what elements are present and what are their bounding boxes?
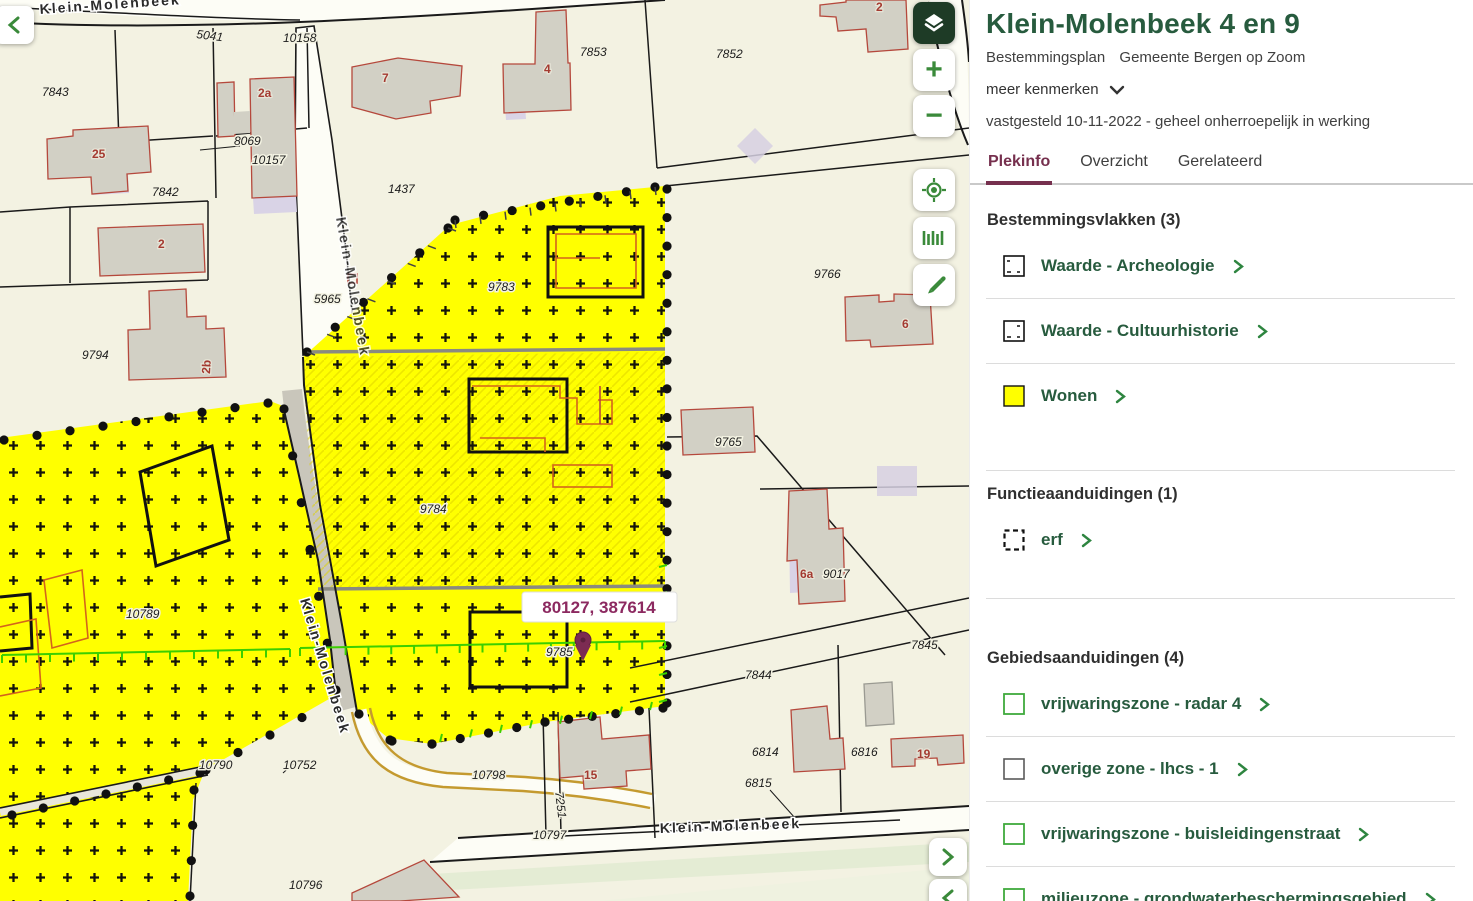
svg-text:7843: 7843 — [42, 85, 69, 99]
more-attributes-toggle[interactable]: meer kenmerken — [986, 81, 1125, 98]
chevron-right-icon — [1425, 892, 1436, 901]
milieuzone-legend-icon — [1003, 888, 1025, 901]
locate-button[interactable] — [913, 169, 955, 211]
svg-text:10789: 10789 — [126, 607, 160, 621]
ruler-icon — [921, 227, 947, 249]
list-item-milieuzone-grondwater[interactable]: milieuzone - grondwaterbeschermingsgebie… — [986, 866, 1455, 901]
section-heading-bestemmingsvlakken: Bestemmingsvlakken (3) — [987, 211, 1455, 230]
tab-plekinfo[interactable]: Plekinfo — [986, 145, 1052, 185]
svg-text:6815: 6815 — [745, 776, 772, 790]
svg-text:6814: 6814 — [752, 745, 779, 759]
svg-text:9766: 9766 — [814, 267, 841, 281]
draw-button[interactable] — [913, 264, 955, 306]
svg-text:10157: 10157 — [252, 153, 287, 167]
svg-text:2b: 2b — [199, 359, 214, 374]
section-heading-functieaanduidingen: Functieaanduidingen (1) — [987, 485, 1455, 504]
svg-text:9784: 9784 — [420, 502, 447, 516]
list-item-waarde-cultuurhistorie[interactable]: Waarde - Cultuurhistorie — [986, 298, 1455, 363]
svg-text:7853: 7853 — [580, 45, 607, 59]
list-item-label: erf — [1041, 530, 1063, 550]
svg-text:10752: 10752 — [283, 758, 317, 772]
svg-text:19: 19 — [917, 747, 931, 761]
minus-icon: − — [925, 101, 943, 131]
list-item-vrijwaringszone-buisleidingenstraat[interactable]: vrijwaringszone - buisleidingenstraat — [986, 801, 1455, 866]
svg-text:8069: 8069 — [234, 134, 261, 148]
plan-subtitle: Bestemmingsplan Gemeente Bergen op Zoom — [986, 49, 1455, 66]
svg-text:9794: 9794 — [82, 348, 109, 362]
pencil-icon — [921, 272, 947, 298]
list-item-label: Waarde - Cultuurhistorie — [1041, 321, 1239, 341]
wonen-legend-icon — [1003, 385, 1025, 407]
overige-zone-legend-icon — [1003, 758, 1025, 780]
svg-text:15: 15 — [584, 768, 598, 782]
tab-overzicht[interactable]: Overzicht — [1078, 145, 1150, 183]
svg-text:9785: 9785 — [546, 645, 573, 659]
list-item-label: milieuzone - grondwaterbeschermingsgebie… — [1041, 889, 1407, 901]
tab-gerelateerd[interactable]: Gerelateerd — [1176, 145, 1265, 183]
layers-icon — [922, 11, 946, 35]
list-item-overige-zone-lhcs[interactable]: overige zone - lhcs - 1 — [986, 736, 1455, 801]
zoning-map[interactable]: Klein-Molenbeek Klein-Molenbeek Klein-Mo… — [0, 0, 969, 901]
svg-text:6816: 6816 — [851, 745, 878, 759]
svg-text:2: 2 — [158, 237, 165, 251]
section-heading-gebiedsaanduidingen: Gebiedsaanduidingen (4) — [987, 649, 1455, 668]
zoning-map-canvas[interactable]: Klein-Molenbeek Klein-Molenbeek Klein-Mo… — [0, 0, 969, 901]
svg-text:6a: 6a — [800, 567, 814, 581]
chevron-right-icon — [1081, 533, 1092, 548]
layers-button[interactable] — [913, 2, 955, 44]
chevron-right-icon — [941, 848, 955, 866]
svg-text:7845: 7845 — [911, 638, 938, 652]
list-item-erf[interactable]: erf — [986, 508, 1455, 572]
panel-expand-button[interactable] — [929, 879, 967, 901]
chevron-down-icon — [1109, 85, 1125, 95]
zoom-in-button[interactable]: + — [913, 49, 955, 91]
svg-text:2: 2 — [876, 0, 883, 14]
chevron-left-icon — [941, 889, 955, 901]
svg-text:7852: 7852 — [716, 47, 743, 61]
cultuurhistorie-legend-icon — [1003, 320, 1025, 342]
page-title: Klein-Molenbeek 4 en 9 — [986, 8, 1455, 40]
svg-text:7844: 7844 — [745, 668, 772, 682]
svg-text:9017: 9017 — [823, 567, 851, 581]
svg-text:10798: 10798 — [472, 768, 506, 782]
radar-zone-legend-icon — [1003, 693, 1025, 715]
plan-viewer-app: Klein-Molenbeek Klein-Molenbeek Klein-Mo… — [0, 0, 1473, 901]
panel-collapse-button[interactable] — [929, 838, 967, 876]
svg-text:6: 6 — [902, 317, 909, 331]
chevron-right-icon — [1237, 762, 1248, 777]
section-divider — [986, 470, 1455, 471]
svg-text:1437: 1437 — [388, 182, 416, 196]
chevron-right-icon — [1257, 324, 1268, 339]
svg-text:9783: 9783 — [488, 280, 515, 294]
svg-text:7: 7 — [382, 71, 389, 85]
plan-status: vastgesteld 10-11-2022 - geheel onherroe… — [986, 113, 1455, 130]
list-item-label: vrijwaringszone - buisleidingenstraat — [1041, 824, 1340, 844]
svg-text:4: 4 — [544, 62, 551, 76]
svg-text:7842: 7842 — [152, 185, 179, 199]
zoom-out-button[interactable]: − — [913, 95, 955, 137]
info-panel: Klein-Molenbeek 4 en 9 Bestemmingsplan G… — [969, 0, 1473, 901]
list-item-waarde-archeologie[interactable]: Waarde - Archeologie — [986, 234, 1455, 298]
plus-icon: + — [925, 55, 943, 85]
tab-bar: Plekinfo Overzicht Gerelateerd — [970, 145, 1473, 185]
list-item-label: Waarde - Archeologie — [1041, 256, 1215, 276]
svg-text:10796: 10796 — [289, 878, 323, 892]
back-button[interactable] — [0, 6, 34, 44]
svg-text:10158: 10158 — [283, 31, 317, 45]
svg-text:80127, 387614: 80127, 387614 — [542, 598, 656, 617]
buisleiding-zone-legend-icon — [1003, 823, 1025, 845]
svg-text:5965: 5965 — [314, 292, 341, 306]
coordinate-tooltip: 80127, 387614 — [522, 592, 677, 622]
chevron-right-icon — [1259, 697, 1270, 712]
chevron-right-icon — [1233, 259, 1244, 274]
svg-text:2a: 2a — [258, 86, 272, 100]
chevron-right-icon — [1115, 389, 1126, 404]
list-item-label: vrijwaringszone - radar 4 — [1041, 694, 1241, 714]
svg-text:10790: 10790 — [199, 758, 233, 772]
list-item-label: Wonen — [1041, 386, 1097, 406]
list-item-label: overige zone - lhcs - 1 — [1041, 759, 1219, 779]
chevron-right-icon — [1358, 827, 1369, 842]
archeologie-legend-icon — [1003, 255, 1025, 277]
crosshair-icon — [921, 177, 947, 203]
svg-text:9765: 9765 — [715, 435, 742, 449]
svg-text:10797: 10797 — [533, 828, 568, 842]
svg-text:25: 25 — [92, 147, 106, 161]
list-item-vrijwaringszone-radar[interactable]: vrijwaringszone - radar 4 — [986, 672, 1455, 736]
chevron-left-icon — [6, 16, 22, 34]
list-item-wonen[interactable]: Wonen — [986, 363, 1455, 428]
measure-button[interactable] — [913, 217, 955, 259]
erf-legend-icon — [1003, 529, 1025, 551]
